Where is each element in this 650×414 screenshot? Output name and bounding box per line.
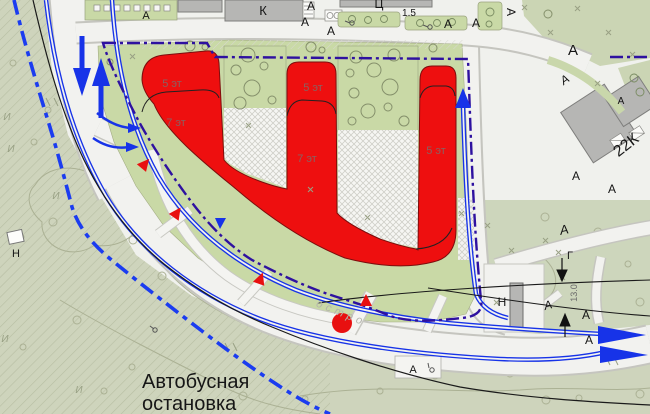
ground-label-i-2: И bbox=[7, 144, 15, 155]
floor-label-left-5: 5 эт bbox=[162, 78, 182, 90]
floor-label-right-5: 5 эт bbox=[426, 145, 446, 157]
surface-label-a-16: А bbox=[585, 333, 593, 347]
dimension-label-130: 13.0 bbox=[569, 284, 579, 302]
surface-label-a-5: А bbox=[444, 17, 452, 31]
up-arrow-shaft bbox=[99, 84, 104, 118]
map-canvas: Автобуснаяостановка5 эт7 эт5 эт7 эт5 этК… bbox=[0, 0, 650, 414]
building-label-n-east: Н bbox=[498, 295, 507, 309]
site-plan-map: Автобуснаяостановка5 эт7 эт5 эт7 эт5 этК… bbox=[0, 0, 650, 414]
utility-label-g: Г bbox=[567, 250, 573, 262]
floor-label-mid-5: 5 эт bbox=[303, 82, 323, 94]
surface-label-a-15: А bbox=[582, 308, 590, 322]
ground-label-i-5: И bbox=[75, 385, 83, 396]
surface-label-a-3: А bbox=[301, 15, 309, 29]
floor-label-mid-7: 7 эт bbox=[297, 153, 317, 165]
bus-stop-label-line1: Автобусная bbox=[142, 371, 249, 393]
building-c bbox=[340, 0, 432, 7]
ground-label-i-4: И bbox=[1, 334, 9, 345]
surface-label-a-2: А bbox=[307, 0, 315, 13]
building-n-east bbox=[510, 283, 523, 328]
surface-label-a-10: А bbox=[618, 96, 625, 107]
surface-label-a-8: А bbox=[568, 42, 578, 59]
surface-label-a-17: А bbox=[409, 364, 417, 376]
surface-label-a-1: А bbox=[142, 10, 150, 22]
surface-label-a-12: А bbox=[608, 182, 616, 196]
floor-label-left-7: 7 эт bbox=[166, 117, 186, 129]
ground-label-i-1: И bbox=[3, 112, 11, 123]
building-label-c: Ц bbox=[375, 0, 384, 11]
building-label-k: К bbox=[259, 3, 267, 18]
building-block-1 bbox=[178, 0, 222, 12]
ground-label-i-3: И bbox=[52, 191, 60, 202]
building-label-n-west: Н bbox=[12, 248, 20, 260]
surface-label-a-7: А bbox=[504, 8, 518, 16]
building-n-west bbox=[7, 229, 24, 244]
surface-label-a-4: А bbox=[327, 24, 335, 38]
shelter-box bbox=[395, 356, 441, 378]
down-arrow-shaft bbox=[80, 36, 85, 70]
dimension-label-15: 1.5 bbox=[402, 8, 416, 19]
surface-label-a-11: А bbox=[572, 169, 580, 183]
surface-label-a-6: А bbox=[472, 16, 480, 30]
bus-stop-label-line2: остановка bbox=[142, 393, 237, 414]
